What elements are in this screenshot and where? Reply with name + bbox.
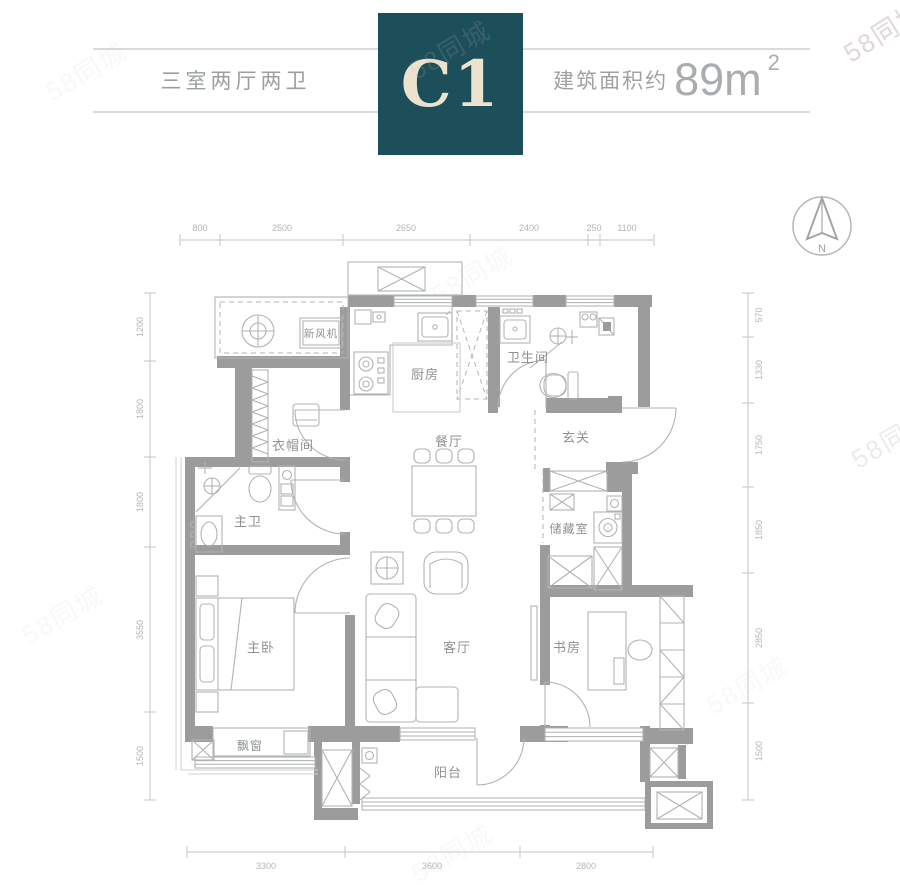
device-box	[607, 496, 622, 511]
dim-left-1: 1800	[135, 399, 145, 419]
dining-table	[412, 466, 476, 516]
dim-right-1: 1330	[754, 360, 764, 380]
office-chair-icon	[628, 640, 652, 660]
shaft-icon	[550, 471, 607, 491]
throw-pillow	[372, 601, 402, 632]
chair	[458, 449, 474, 463]
dim-top-1: 2500	[272, 223, 292, 233]
wall	[608, 396, 622, 413]
kitchen-fixtures	[350, 307, 460, 412]
room-label-bay-window: 飘窗	[237, 739, 263, 753]
room-label-cloakroom: 衣帽间	[272, 438, 314, 453]
wall	[352, 742, 360, 804]
shelf	[279, 466, 295, 510]
wall	[488, 307, 500, 407]
wall	[546, 398, 610, 413]
wall	[355, 726, 400, 742]
room-label-master-bath: 主卫	[234, 514, 262, 529]
ac-platform-unit	[648, 784, 710, 826]
wall	[607, 468, 632, 492]
dim-right-3: 1850	[754, 520, 764, 540]
compass-north-label: N	[818, 243, 826, 255]
room-label-dining: 餐厅	[435, 434, 463, 449]
room-label-living: 客厅	[443, 640, 471, 655]
throw-pillow	[371, 687, 400, 718]
hanger-rack	[252, 370, 268, 462]
window-study	[545, 728, 643, 741]
kitchen-sink-icon	[418, 311, 452, 341]
dim-top-0: 800	[192, 223, 207, 233]
dim-top-5: 1100	[617, 223, 636, 233]
room-label-bathroom: 卫生间	[507, 350, 549, 365]
floor-drain-icon	[362, 748, 377, 763]
stove-icon	[354, 352, 388, 394]
dining-set	[412, 449, 476, 533]
cabinet	[548, 556, 592, 588]
entry-door	[622, 408, 676, 462]
watermark-text: 58同城	[404, 15, 496, 85]
side-table-lamp-icon	[371, 552, 403, 584]
wall	[622, 492, 632, 590]
wall	[348, 295, 394, 307]
window-balcony	[362, 798, 645, 810]
room-label-foyer: 玄关	[562, 430, 590, 445]
dim-left-0: 1200	[135, 317, 145, 337]
watermark-text: 58同城	[838, 0, 900, 68]
chair	[414, 519, 430, 533]
fridge-symbol	[457, 311, 487, 399]
window	[476, 296, 533, 306]
dim-bottom-0: 3300	[256, 861, 276, 871]
bed-icon	[196, 598, 294, 690]
living-furniture	[366, 552, 537, 722]
room-label-storage: 储藏室	[549, 521, 588, 536]
dim-left-2: 1800	[135, 492, 145, 512]
tv-icon	[531, 606, 537, 680]
window	[566, 296, 614, 306]
dim-left-4: 1500	[135, 746, 145, 766]
desk-icon	[588, 612, 626, 690]
dim-top-4: 250	[586, 223, 601, 233]
shaft-icon	[322, 750, 352, 806]
wall	[308, 726, 355, 742]
chair	[436, 519, 452, 533]
dim-top-2: 2650	[396, 223, 416, 233]
floorplan-canvas: 58同城 58同城 58同城 58同城 58同城 58同城 58同城 58同城	[0, 0, 900, 887]
cabinet	[550, 494, 574, 510]
dim-bottom-1: 3600	[422, 861, 442, 871]
chair	[436, 449, 452, 463]
dim-right-0: 570	[754, 307, 764, 322]
wall	[185, 467, 195, 738]
balcony-fixtures	[322, 748, 710, 826]
wall	[235, 368, 252, 467]
room-label-fresh-air: 新风机	[304, 327, 339, 340]
wall	[314, 808, 358, 820]
balcony-door	[477, 738, 524, 785]
washing-machine-icon	[594, 512, 622, 543]
wardrobe-icon	[660, 596, 684, 730]
wall	[340, 368, 350, 410]
master-bath-door	[291, 480, 345, 534]
wall	[452, 295, 476, 307]
dim-right-4: 2850	[754, 628, 764, 648]
shower-screen	[196, 468, 240, 512]
watermark-text: 58同城	[846, 404, 900, 474]
wall	[543, 468, 550, 492]
wall	[488, 398, 498, 413]
dim-right-5: 1500	[754, 741, 764, 761]
master-bedroom-door	[295, 558, 350, 613]
watermark-text: 58同城	[16, 580, 108, 650]
watermark-text: 58同城	[40, 37, 132, 107]
wall	[533, 295, 566, 307]
dryer-rack	[360, 768, 370, 800]
room-label-master-bedroom: 主卧	[247, 640, 275, 655]
dim-bottom-2: 2800	[576, 861, 596, 871]
window	[394, 296, 452, 306]
bathroom-door	[498, 360, 546, 408]
room-label-balcony: 阳台	[434, 765, 462, 780]
master-bath-fixtures	[191, 462, 295, 552]
sofa-icon	[366, 594, 458, 722]
watermark-text: 58同城	[701, 650, 793, 720]
wall	[614, 295, 652, 307]
toilet-icon	[249, 466, 271, 502]
nightstand	[196, 692, 218, 712]
chair	[458, 519, 474, 533]
bath-sink-icon	[500, 309, 530, 343]
dim-top-3: 2400	[519, 223, 539, 233]
room-label-study: 书房	[553, 640, 581, 655]
room-label-kitchen: 厨房	[411, 367, 439, 382]
dim-right-2: 1750	[754, 435, 764, 455]
wall	[314, 742, 322, 812]
monitor-icon	[614, 658, 624, 684]
shaft-icon	[650, 748, 678, 777]
armchair-icon	[424, 552, 468, 594]
window-living-slider	[400, 728, 475, 740]
nightstand	[196, 576, 218, 596]
chair	[414, 449, 430, 463]
study-door	[545, 682, 590, 727]
floorplan-page: { "header": { "layout_label": "三室两厅两卫", …	[0, 0, 900, 887]
laundry-cabinet	[580, 312, 614, 335]
cabinet	[594, 547, 622, 590]
wall	[638, 307, 650, 407]
compass: N	[793, 197, 851, 255]
wall	[678, 745, 686, 779]
study-furniture	[588, 596, 684, 730]
wall	[345, 615, 355, 728]
dim-left-3: 3550	[135, 620, 145, 640]
